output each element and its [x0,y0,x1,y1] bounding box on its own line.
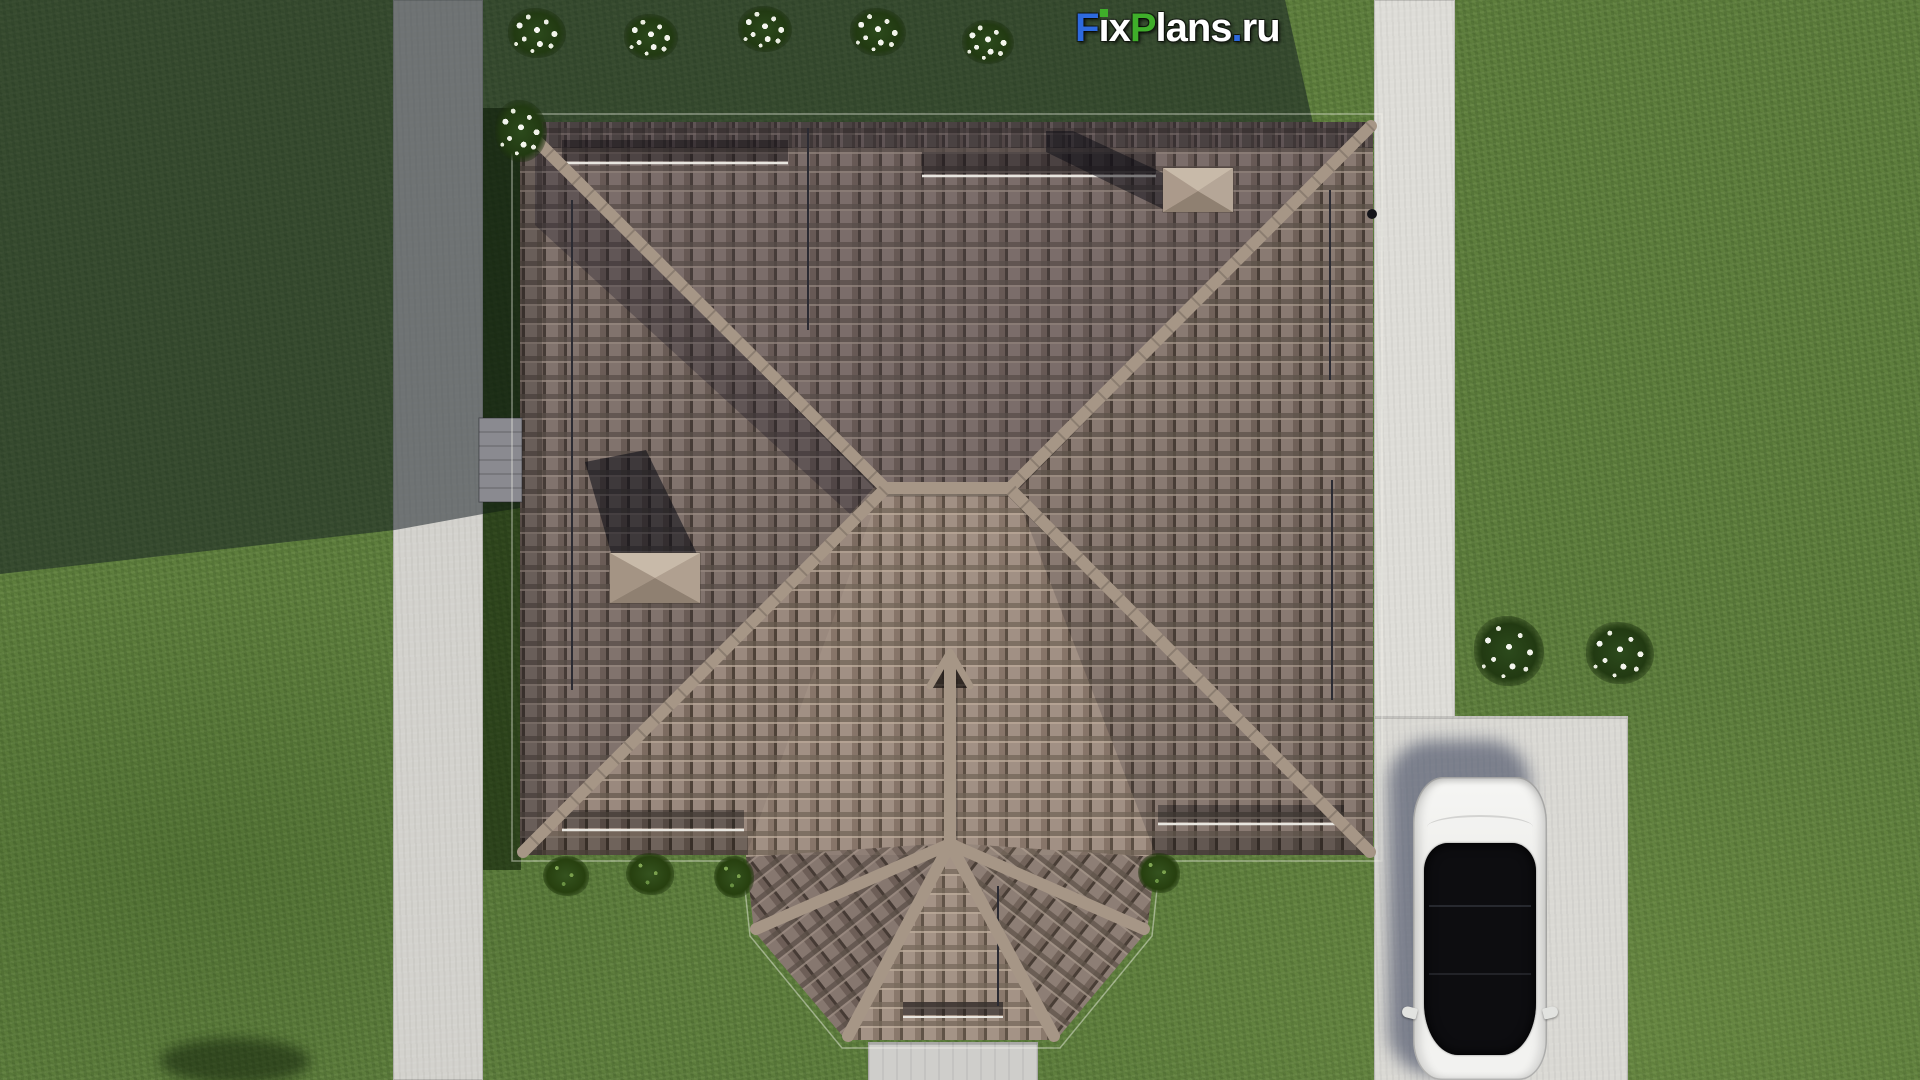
logo-letter-group: lans [1156,6,1232,51]
downspout-outlet [1367,209,1377,219]
flower-bush [1474,616,1544,686]
logo-letter-group: ı [1098,6,1108,51]
logo-i-dot [1100,9,1108,17]
flower-bush [495,100,547,162]
house-roof-plan [0,0,1920,1080]
car-trunk-seam [1427,815,1533,839]
watermark-logo: FıxPlans.ru [1075,6,1280,51]
shrub [543,856,589,896]
car-roof-seam [1429,905,1531,907]
shrub [626,853,674,895]
shrub [1138,853,1180,893]
logo-letter-group: x [1109,6,1130,51]
flower-bush [624,14,678,60]
flower-bush [508,8,566,58]
flower-bush [1586,622,1654,684]
side-canopy [479,418,522,502]
aerial-house-render: FıxPlans.ru [0,0,1920,1080]
flower-bush [962,20,1014,64]
car-glass-roof [1424,843,1536,1055]
logo-letter-group: . [1232,6,1242,51]
logo-letter-group: P [1130,6,1156,51]
logo-letter-group: ru [1242,6,1280,51]
car-roof-seam [1429,973,1531,975]
shrub [714,856,754,898]
logo-letter-group: F [1075,6,1098,51]
flower-bush [850,8,906,56]
flower-bush [738,6,792,52]
car [1413,777,1547,1080]
